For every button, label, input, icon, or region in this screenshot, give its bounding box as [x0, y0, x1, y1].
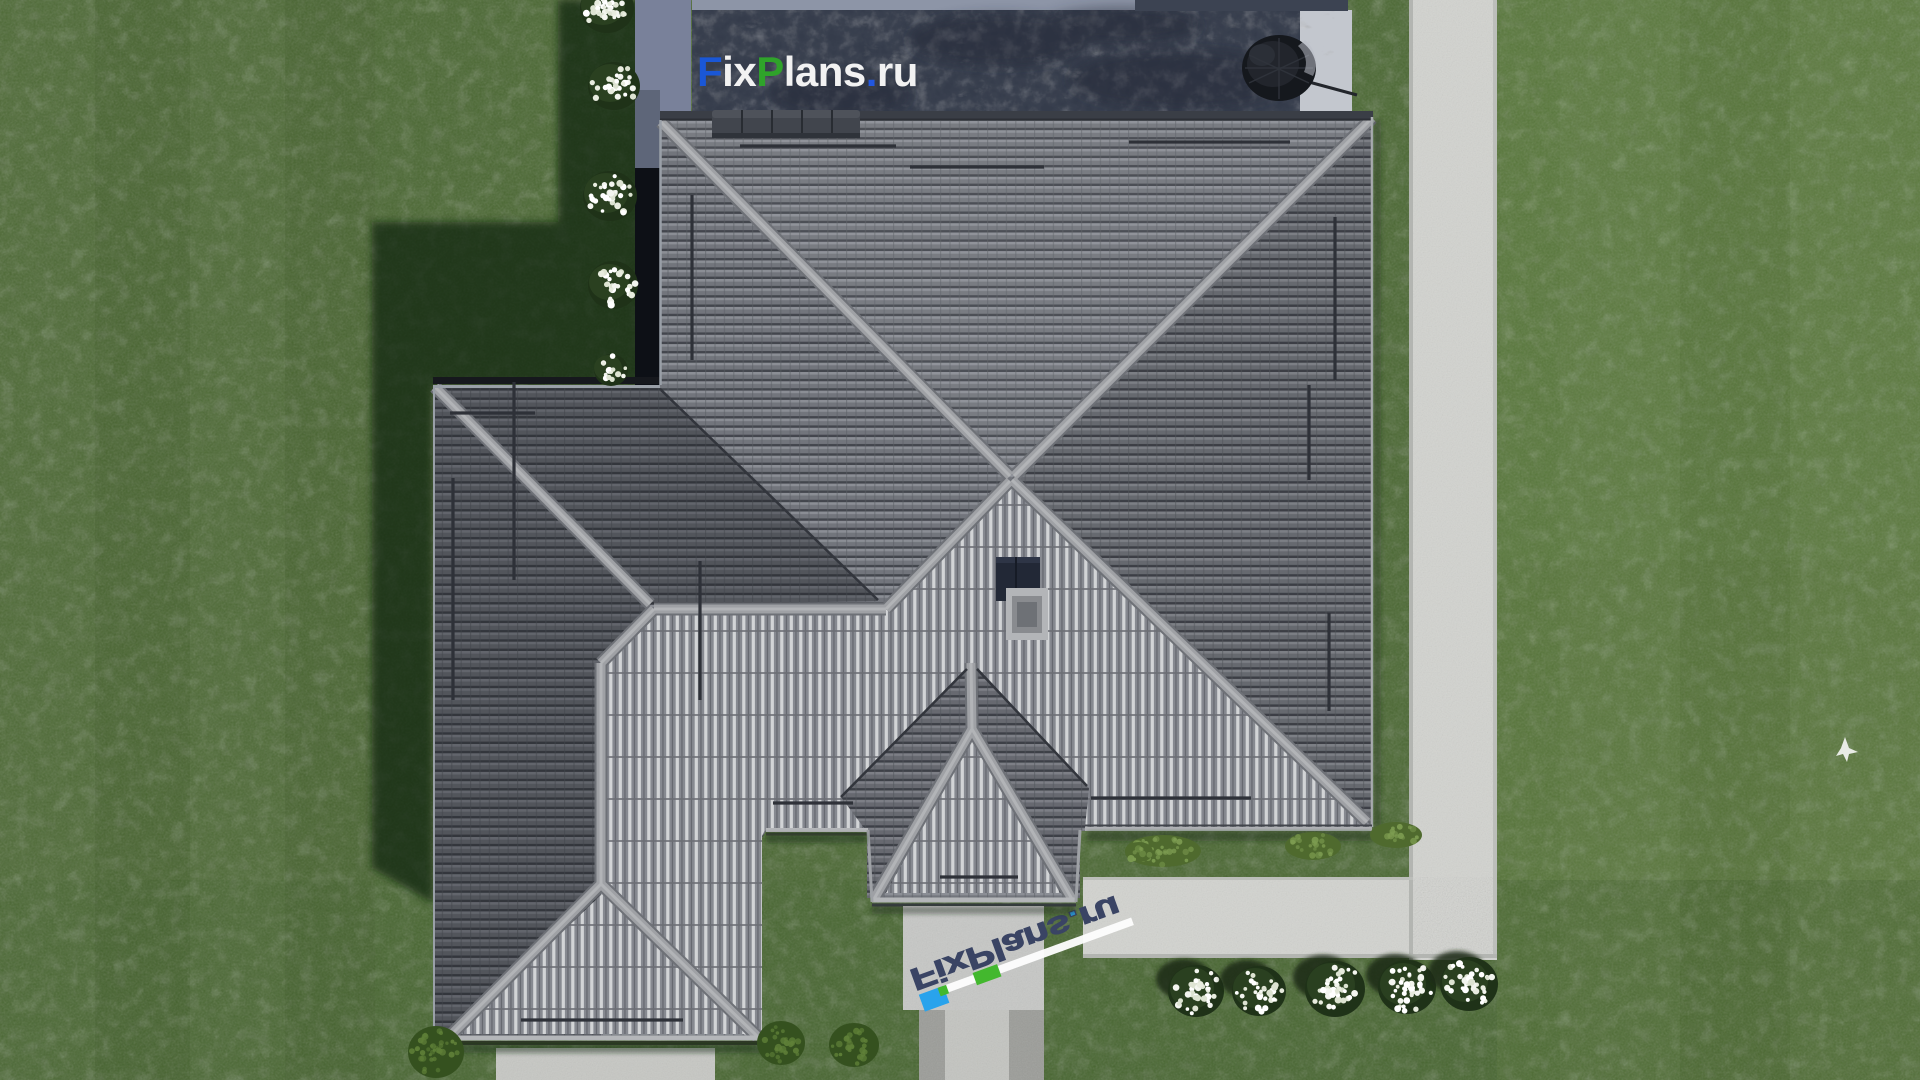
svg-text:FixPlans.ru: FixPlans.ru — [697, 48, 918, 95]
